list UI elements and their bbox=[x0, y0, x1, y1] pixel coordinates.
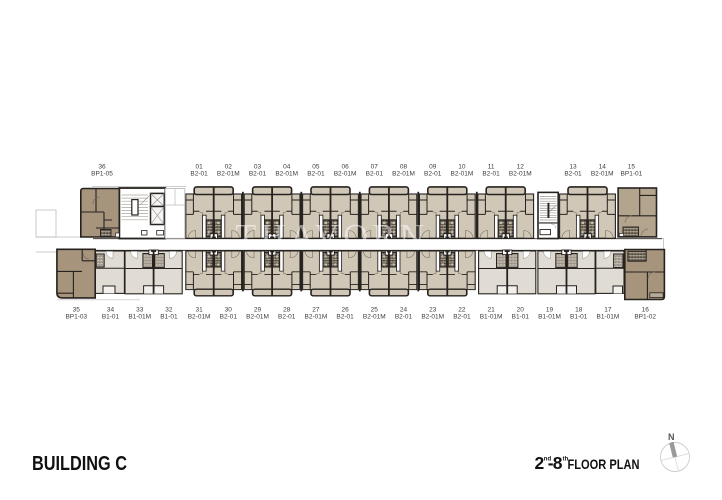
svg-text:B1-01: B1-01 bbox=[102, 314, 120, 321]
svg-text:B1-01: B1-01 bbox=[512, 314, 530, 321]
svg-text:N: N bbox=[668, 432, 675, 442]
svg-text:BP1-05: BP1-05 bbox=[91, 170, 113, 177]
svg-text:THAVORN: THAVORN bbox=[235, 218, 428, 255]
svg-text:B2-01: B2-01 bbox=[220, 314, 238, 321]
svg-text:BP1-02: BP1-02 bbox=[634, 314, 656, 321]
svg-text:B2-01: B2-01 bbox=[278, 314, 296, 321]
svg-text:B2-01: B2-01 bbox=[366, 170, 384, 177]
svg-text:B2-01M: B2-01M bbox=[392, 170, 415, 177]
svg-text:B1-01M: B1-01M bbox=[480, 314, 503, 321]
svg-text:B2-01: B2-01 bbox=[307, 170, 325, 177]
svg-text:8: 8 bbox=[553, 453, 563, 473]
svg-text:B1-01M: B1-01M bbox=[597, 314, 620, 321]
svg-text:B2-01: B2-01 bbox=[249, 170, 267, 177]
svg-text:B1-01M: B1-01M bbox=[538, 314, 561, 321]
svg-text:B2-01: B2-01 bbox=[190, 170, 208, 177]
svg-text:B2-01: B2-01 bbox=[564, 170, 582, 177]
svg-text:B2-01M: B2-01M bbox=[421, 314, 444, 321]
svg-text:B2-01: B2-01 bbox=[482, 170, 500, 177]
svg-text:B1-01: B1-01 bbox=[570, 314, 588, 321]
svg-text:B2-01M: B2-01M bbox=[275, 170, 298, 177]
svg-text:B2-01: B2-01 bbox=[424, 170, 442, 177]
svg-text:B2-01M: B2-01M bbox=[305, 314, 328, 321]
svg-text:B2-01: B2-01 bbox=[395, 314, 413, 321]
svg-text:B2-01M: B2-01M bbox=[188, 314, 211, 321]
svg-text:B2-01: B2-01 bbox=[453, 314, 471, 321]
svg-text:BP1-01: BP1-01 bbox=[621, 170, 643, 177]
svg-text:B2-01: B2-01 bbox=[336, 314, 354, 321]
svg-text:B2-01M: B2-01M bbox=[363, 314, 386, 321]
svg-text:FLOOR PLAN: FLOOR PLAN bbox=[568, 456, 640, 472]
svg-text:B1-01M: B1-01M bbox=[128, 314, 151, 321]
svg-text:B2-01M: B2-01M bbox=[334, 170, 357, 177]
svg-text:B1-01: B1-01 bbox=[160, 314, 178, 321]
svg-text:B2-01M: B2-01M bbox=[509, 170, 532, 177]
svg-text:B2-01M: B2-01M bbox=[246, 314, 269, 321]
svg-text:BUILDING C: BUILDING C bbox=[32, 452, 127, 475]
svg-text:B2-01M: B2-01M bbox=[217, 170, 240, 177]
svg-text:B2-01M: B2-01M bbox=[591, 170, 614, 177]
svg-text:BP1-03: BP1-03 bbox=[65, 314, 87, 321]
svg-text:B2-01M: B2-01M bbox=[451, 170, 474, 177]
